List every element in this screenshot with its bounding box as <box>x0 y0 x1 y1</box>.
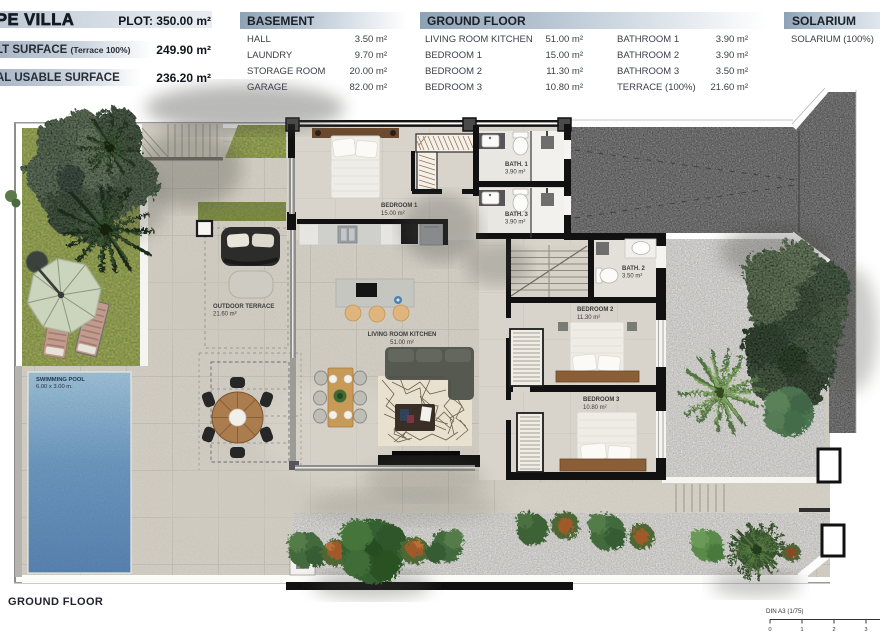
svg-text:51.00 m²: 51.00 m² <box>390 340 414 346</box>
svg-text:BATH. 2: BATH. 2 <box>622 266 646 272</box>
svg-text:11.30 m²: 11.30 m² <box>577 315 600 321</box>
svg-text:3: 3 <box>864 627 867 633</box>
svg-text:BATH. 3: BATH. 3 <box>505 212 529 218</box>
svg-text:1: 1 <box>800 627 803 633</box>
svg-text:SWIMMING POOL: SWIMMING POOL <box>36 377 85 383</box>
svg-text:15.00 m²: 15.00 m² <box>381 211 405 217</box>
svg-text:DIN A3 (1/75): DIN A3 (1/75) <box>766 608 803 615</box>
svg-text:6.00 x 3.00 m.: 6.00 x 3.00 m. <box>36 384 73 390</box>
svg-text:3.90 m²: 3.90 m² <box>505 220 525 226</box>
svg-text:21.60 m²: 21.60 m² <box>213 312 237 318</box>
svg-text:3.90 m²: 3.90 m² <box>505 170 525 176</box>
svg-text:3.50 m²: 3.50 m² <box>622 274 642 280</box>
svg-text:BATH. 1: BATH. 1 <box>505 162 529 168</box>
svg-text:10.80 m²: 10.80 m² <box>583 405 607 411</box>
svg-text:BEDROOM 2: BEDROOM 2 <box>577 307 614 313</box>
svg-text:BEDROOM 3: BEDROOM 3 <box>583 397 620 403</box>
svg-text:0: 0 <box>768 627 771 633</box>
svg-text:2: 2 <box>832 627 835 633</box>
svg-text:LIVING ROOM KITCHEN: LIVING ROOM KITCHEN <box>368 332 437 338</box>
svg-text:OUTDOOR TERRACE: OUTDOOR TERRACE <box>213 304 274 310</box>
